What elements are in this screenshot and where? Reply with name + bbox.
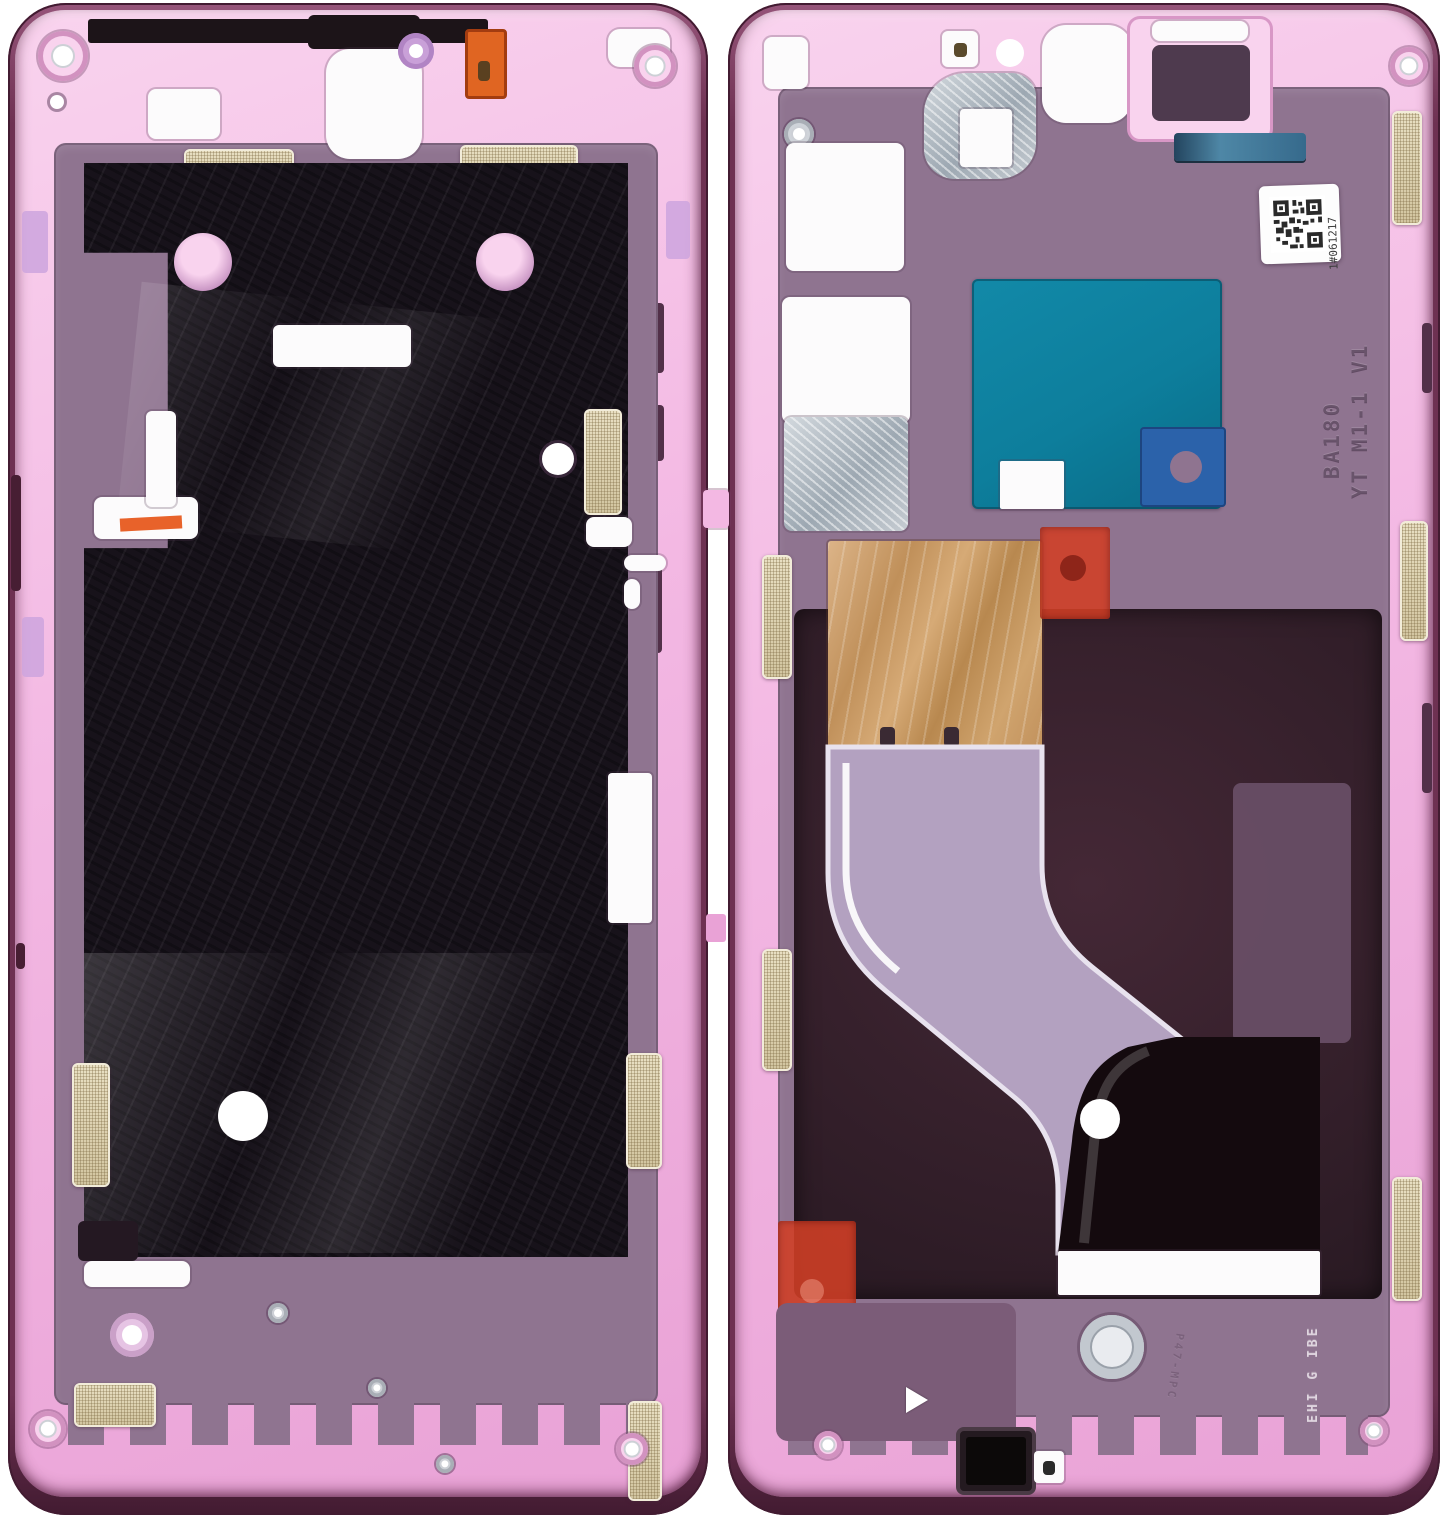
screw-boss bbox=[814, 1431, 842, 1459]
antenna-mesh bbox=[762, 555, 792, 679]
sensor-dot bbox=[1043, 1461, 1055, 1475]
screw bbox=[436, 1455, 454, 1473]
top-cutout bbox=[764, 37, 808, 89]
screw-boss bbox=[616, 1433, 648, 1465]
antenna-mesh bbox=[762, 949, 792, 1071]
rail-cutout bbox=[608, 773, 652, 923]
molded-code-bottom: EHI G IBE bbox=[1306, 1293, 1321, 1423]
antenna-mesh bbox=[584, 409, 622, 515]
red-tab-hole bbox=[1060, 555, 1086, 581]
copper-notch bbox=[944, 727, 959, 747]
arrow-sticker bbox=[906, 1387, 928, 1413]
camera-hole bbox=[1042, 25, 1132, 123]
plate-cutout bbox=[586, 517, 632, 547]
pcb-bay-cutout bbox=[782, 297, 910, 423]
screw-boss bbox=[38, 31, 88, 81]
sensor-dot bbox=[954, 43, 967, 57]
antenna-mesh bbox=[626, 1053, 662, 1169]
screw-post-through-sheet bbox=[174, 233, 232, 291]
screw-boss-large bbox=[1080, 1315, 1144, 1379]
side-notch bbox=[16, 943, 25, 969]
screw-post-through-sheet bbox=[476, 233, 534, 291]
sheet-hole bbox=[218, 1091, 268, 1141]
sheet-cutout-bar bbox=[273, 325, 411, 367]
pcb-bay-cutout bbox=[786, 143, 904, 271]
well-inner-plate bbox=[1233, 783, 1351, 1043]
rail-slot bbox=[1422, 703, 1432, 793]
qr-label-sticker: 1#061217 bbox=[1259, 184, 1342, 265]
molded-code: BA180 bbox=[1320, 289, 1344, 479]
screw bbox=[268, 1303, 288, 1323]
antenna-mesh bbox=[74, 1383, 156, 1427]
product-photo-stage: 1#061217 BA180 YT M1-1 V1 bbox=[0, 0, 1445, 1521]
charging-port bbox=[956, 1427, 1036, 1495]
bottom-grommet-hole bbox=[122, 1325, 142, 1345]
gap-tab bbox=[703, 490, 729, 528]
red-tab-hole bbox=[800, 1279, 824, 1303]
screw-hole bbox=[50, 95, 64, 109]
thermal-pad-window bbox=[960, 109, 1012, 167]
bottom-dark-recess bbox=[78, 1221, 138, 1261]
gap-tab bbox=[706, 914, 726, 942]
screw-boss bbox=[634, 45, 676, 87]
molded-code: YT M1-1 V1 bbox=[1348, 289, 1372, 499]
bottom-cutout-band bbox=[1058, 1251, 1320, 1295]
antenna-mesh bbox=[1392, 1177, 1422, 1301]
blue-sticker-hole bbox=[1170, 451, 1202, 483]
adhesive-residue bbox=[22, 211, 48, 273]
antenna-mesh bbox=[1392, 111, 1422, 225]
speaker-module bbox=[776, 1303, 1016, 1441]
screw-boss bbox=[1390, 47, 1428, 85]
screw bbox=[368, 1379, 386, 1397]
side-key-cutout bbox=[11, 475, 21, 591]
crinkled-foil bbox=[784, 417, 908, 531]
antenna-connector-slot bbox=[478, 61, 490, 81]
copper-notch bbox=[880, 727, 895, 747]
antenna-mesh bbox=[1400, 521, 1428, 641]
front-frame-panel bbox=[8, 3, 708, 1515]
adhesive-residue bbox=[22, 617, 44, 677]
top-hole bbox=[996, 39, 1024, 67]
camera-frame-cutout bbox=[1152, 21, 1248, 41]
qr-serial-text: 1#061217 bbox=[1324, 178, 1340, 270]
plate-cutout bbox=[624, 579, 640, 609]
plate-hole bbox=[542, 443, 574, 475]
plate-cutout bbox=[624, 555, 666, 571]
screw-boss bbox=[1360, 1417, 1388, 1445]
qr-code bbox=[1269, 195, 1327, 253]
copper-shield bbox=[828, 541, 1042, 747]
camera-opening bbox=[1152, 45, 1250, 121]
rail-slot bbox=[1422, 323, 1432, 393]
screw-boss bbox=[30, 1411, 66, 1447]
antenna-mesh bbox=[72, 1063, 110, 1187]
mic-grommet-hole bbox=[409, 44, 423, 58]
back-frame-panel: 1#061217 BA180 YT M1-1 V1 bbox=[728, 3, 1440, 1515]
camera-bracket-blue bbox=[1174, 133, 1306, 161]
plate-cutout bbox=[84, 1261, 190, 1287]
plate-cutout bbox=[146, 411, 176, 507]
top-cutout bbox=[148, 89, 220, 139]
adhesive-residue bbox=[666, 201, 690, 259]
teal-notch-cutout bbox=[1000, 461, 1064, 509]
